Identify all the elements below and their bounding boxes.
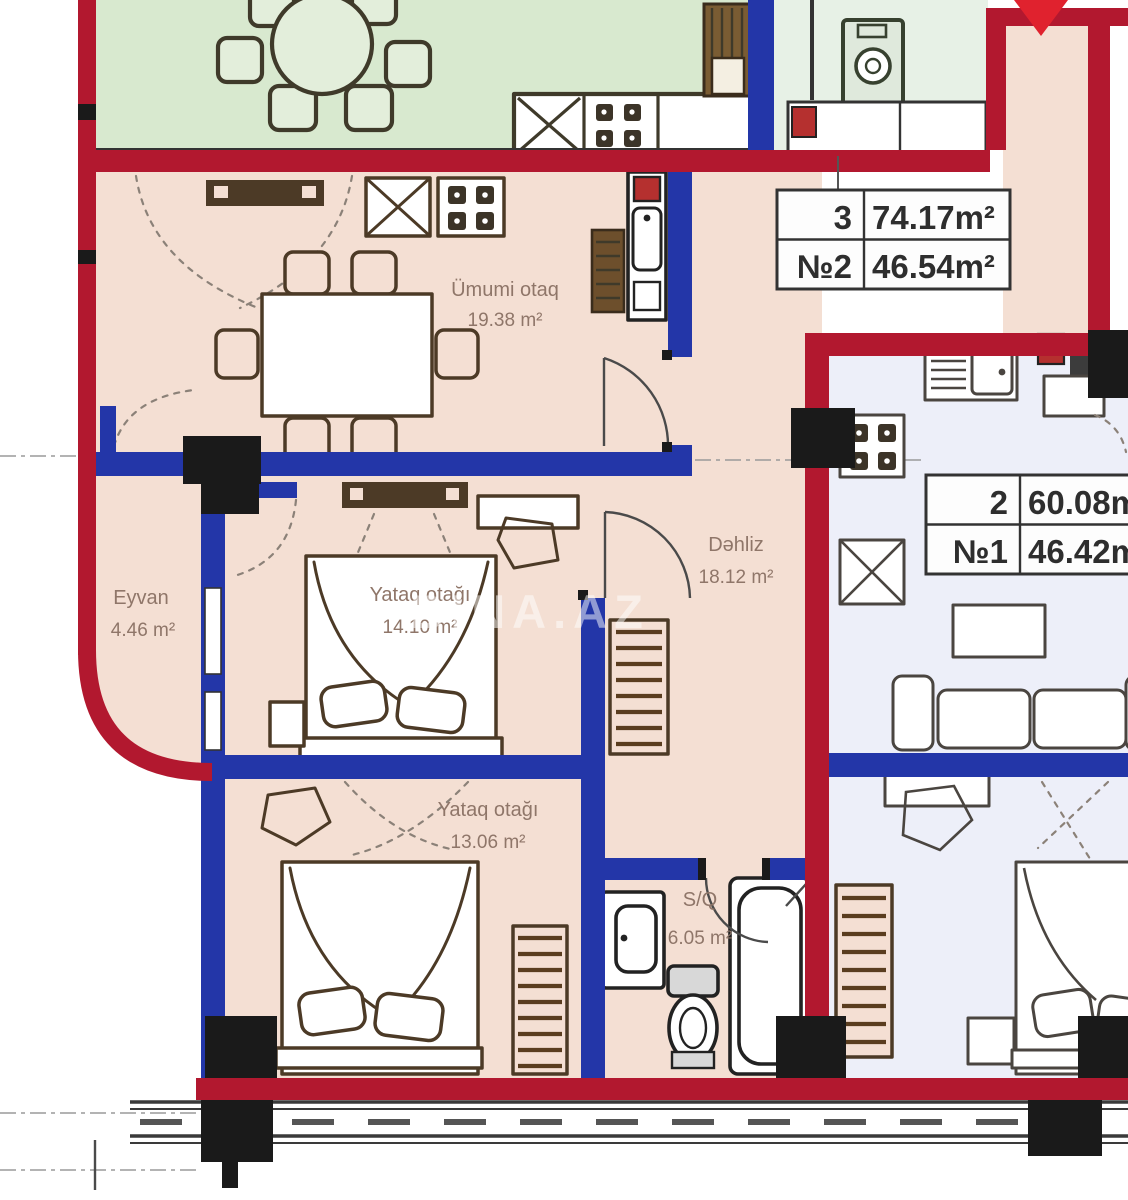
counter-sink-x-icon: [840, 540, 904, 604]
kitchen-sink-x-icon: [366, 178, 430, 236]
svg-text:4.46 m²: 4.46 m²: [111, 620, 175, 641]
sink-icon: [602, 892, 664, 988]
coffee-table: [953, 605, 1045, 657]
radiator-wardrobe-icon: [513, 926, 567, 1074]
floor-plan: 3 74.17m² №2 46.54m² 2 60.08m² №1 46.42m…: [0, 0, 1128, 1200]
apt1-floor-count: 2: [990, 484, 1008, 521]
red-appliance-icon: [792, 107, 816, 137]
svg-text:18.12 m²: 18.12 m²: [699, 567, 774, 588]
svg-text:6.05 m²: 6.05 m²: [668, 928, 732, 949]
dresser: [478, 496, 578, 528]
svg-text:S/Q: S/Q: [683, 889, 717, 911]
apt2-total-area: 74.17m²: [872, 199, 995, 236]
wardrobe-icon: [610, 620, 668, 754]
wash-counter: [788, 102, 986, 152]
kitchen-counter: [514, 94, 754, 156]
washing-machine-icon: [843, 20, 903, 106]
stove-icon: [438, 178, 504, 236]
bed-icon: [276, 862, 482, 1074]
apt1-unit-number: №1: [953, 533, 1008, 570]
nightstand: [270, 702, 304, 746]
svg-text:Ümumi otaq: Ümumi otaq: [451, 279, 559, 301]
nightstand: [968, 1018, 1014, 1064]
radiator-icon: [592, 230, 624, 312]
watermark-text: BINA.AZ: [410, 585, 650, 638]
dahliz-furniture: [610, 620, 668, 754]
svg-text:19.38 m²: 19.38 m²: [468, 310, 543, 331]
apt1-total-area: 60.08m²: [1028, 484, 1128, 521]
svg-text:Eyvan: Eyvan: [113, 587, 169, 609]
svg-text:Yataq otağı: Yataq otağı: [438, 799, 539, 821]
balcony-railing: [95, 1100, 1128, 1190]
apt1-net-area: 46.42m²: [1028, 533, 1128, 570]
apt2-unit-number: №2: [797, 248, 852, 285]
svg-text:13.06 m²: 13.06 m²: [451, 832, 526, 853]
radiator-icon: [704, 4, 750, 96]
tall-kitchen-unit: [628, 172, 666, 320]
apt2-net-area: 46.54m²: [872, 248, 995, 285]
svg-text:Dəhliz: Dəhliz: [708, 534, 764, 556]
toilet-icon: [668, 966, 718, 1068]
info-table-apt1: 2 60.08m² №1 46.42m²: [926, 475, 1128, 574]
apt2-floor-count: 3: [834, 199, 852, 236]
